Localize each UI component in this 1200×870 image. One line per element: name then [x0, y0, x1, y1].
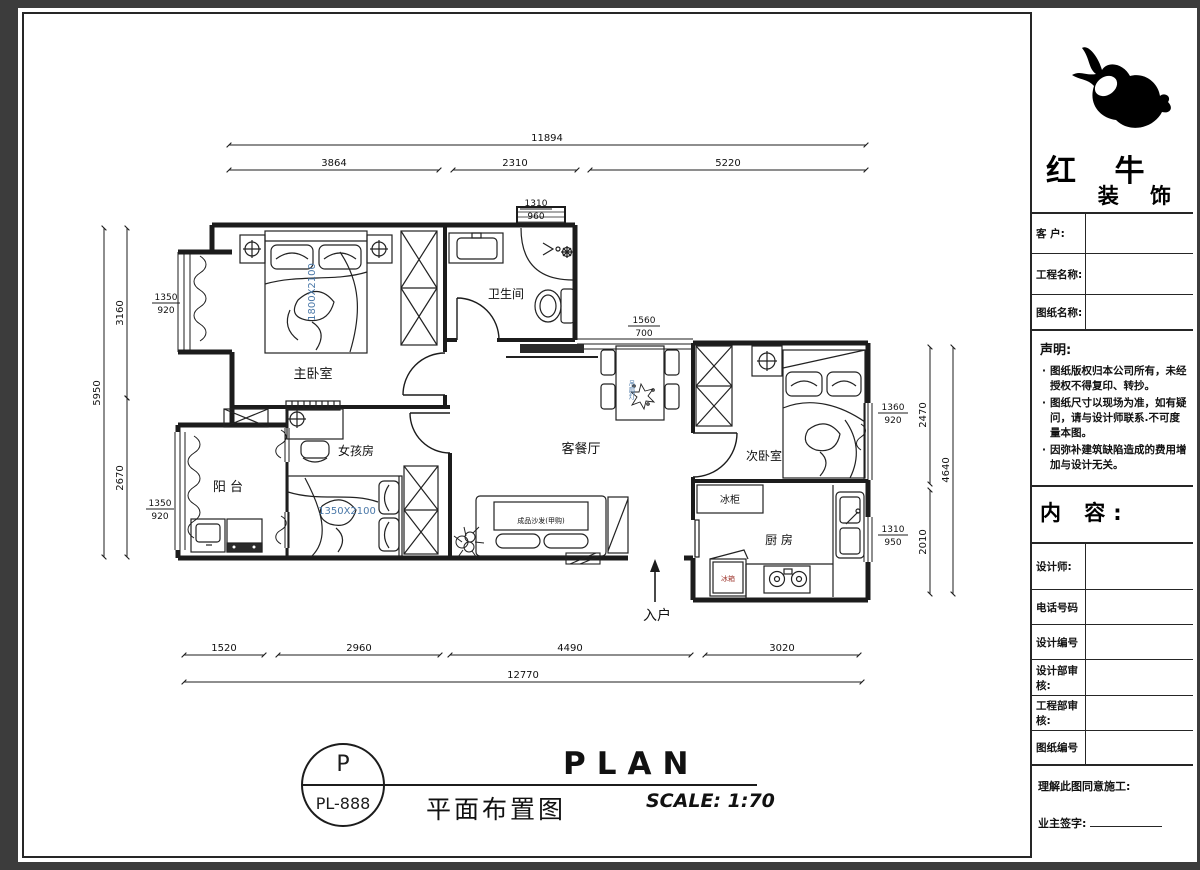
- design-review-label: 设计部审核:: [1032, 660, 1086, 695]
- owner-signature-text: 业主签字:: [1038, 817, 1086, 830]
- dim-right-1: 2470: [918, 402, 929, 427]
- freezer-label: 冰柜: [720, 493, 740, 506]
- dim-top-2: 2310: [502, 158, 527, 169]
- dim-top-total: 11894: [531, 133, 563, 144]
- win-top-a: 1310: [525, 199, 548, 209]
- fridge-label: 冰箱: [721, 574, 735, 583]
- entry-label: 入户: [643, 607, 671, 624]
- statement-title: 声明:: [1040, 339, 1187, 358]
- room-label-kitchen: 厨 房: [765, 532, 793, 547]
- design-no-field: [1086, 625, 1193, 659]
- drawing-name-label: 图纸名称:: [1032, 295, 1086, 329]
- master-bed-size-label: 1800X2100: [307, 263, 318, 321]
- win-left1-a: 1350: [155, 293, 178, 303]
- statement-item: ·图纸尺寸以现场为准，如有疑问，请与设计师联系.不可度量本图。: [1040, 396, 1187, 440]
- room-label-balcony: 阳 台: [213, 480, 243, 495]
- room-label-girl: 女孩房: [338, 443, 374, 458]
- phone-field: [1086, 590, 1193, 624]
- sheet-letter: P: [301, 752, 385, 777]
- statement-item: ·图纸版权归本公司所有，未经授权不得复印、转抄。: [1040, 364, 1187, 393]
- statement-item: ·因弥补建筑缺陷造成的费用增加与设计无关。: [1040, 443, 1187, 472]
- plant: [454, 527, 484, 558]
- dim-bot-3: 4490: [557, 643, 582, 654]
- bull-logo-shape: [1072, 47, 1171, 128]
- engineering-review-label: 工程部审核:: [1032, 696, 1086, 730]
- brand-logo-icon: [1060, 42, 1178, 142]
- dim-top-3: 5220: [715, 158, 740, 169]
- room-label-master: 主卧室: [293, 366, 332, 382]
- statement-item-text: 图纸版权归本公司所有，未经授权不得复印、转抄。: [1050, 364, 1187, 393]
- win-right1-a: 1360: [882, 403, 905, 413]
- win-right2-a: 1310: [882, 525, 905, 535]
- signature-section: 理解此图同意施工: 业主签字:: [1032, 766, 1193, 846]
- bullet: ·: [1042, 396, 1046, 440]
- floor-plan-drawing: 11894 3864 2310 5220 1520 2960 4490 3020…: [18, 8, 1197, 862]
- statement-item-text: 因弥补建筑缺陷造成的费用增加与设计无关。: [1050, 443, 1187, 472]
- win-left1-b: 920: [157, 306, 174, 316]
- phone-label: 电话号码: [1032, 590, 1086, 624]
- drawing-title-cn: 平面布置图: [426, 790, 566, 826]
- row-phone: 电话号码: [1032, 590, 1193, 625]
- project-name-label: 工程名称:: [1032, 254, 1086, 294]
- dim-left-total: 5950: [92, 380, 103, 405]
- dim-top-1: 3864: [321, 158, 346, 169]
- win-dining-a: 1560: [633, 316, 656, 326]
- bullet: ·: [1042, 443, 1046, 472]
- statement-item-text: 图纸尺寸以现场为准，如有疑问，请与设计师联系.不可度量本图。: [1050, 396, 1187, 440]
- row-design-no: 设计编号: [1032, 625, 1193, 660]
- bullet: ·: [1042, 364, 1046, 393]
- room-labels: 主卧室 卫生间 客餐厅 次卧室 厨 房 女孩房 阳 台: [213, 287, 793, 547]
- owner-signature-label: 业主签字:: [1038, 814, 1187, 831]
- designer-field: [1086, 544, 1193, 589]
- screenshot-stage: 11894 3864 2310 5220 1520 2960 4490 3020…: [0, 0, 1200, 870]
- construction-consent-label: 理解此图同意施工:: [1038, 778, 1187, 794]
- sofa: [476, 496, 628, 556]
- row-design-review: 设计部审核:: [1032, 660, 1193, 696]
- customer-label: 客 户:: [1032, 214, 1086, 253]
- tv-unit: [506, 344, 598, 357]
- win-left2-b: 920: [151, 512, 168, 522]
- signature-line: [1090, 814, 1162, 827]
- brand-logo-box: 红 牛 装 饰: [1032, 12, 1193, 214]
- drawing-name-field: [1086, 295, 1193, 329]
- win-left2-a: 1350: [149, 499, 172, 509]
- design-no-label: 设计编号: [1032, 625, 1086, 659]
- row-designer: 设计师:: [1032, 544, 1193, 590]
- statement-section: 声明: ·图纸版权归本公司所有，未经授权不得复印、转抄。 ·图纸尺寸以现场为准，…: [1032, 331, 1193, 487]
- sofa-label: 成品沙发(甲购): [517, 516, 565, 525]
- customer-field: [1086, 214, 1193, 253]
- row-customer: 客 户:: [1032, 214, 1193, 254]
- bathroom-fixtures: [449, 228, 574, 323]
- drawing-scale: SCALE: 1:70: [646, 790, 775, 812]
- drawing-sheet: 11894 3864 2310 5220 1520 2960 4490 3020…: [18, 8, 1197, 862]
- brand-name-line2: 装 饰: [1098, 180, 1183, 210]
- design-review-field: [1086, 660, 1193, 695]
- dim-bot-2: 2960: [346, 643, 371, 654]
- fan-lamp-label: 吊扇灯: [627, 380, 635, 401]
- dim-bot-total: 12770: [507, 670, 539, 681]
- row-engineering-review: 工程部审核:: [1032, 696, 1193, 731]
- win-top-b: 960: [527, 212, 544, 222]
- sheet-no-field: [1086, 731, 1193, 764]
- dim-left-1: 3160: [115, 300, 126, 325]
- dim-right-total: 4640: [941, 457, 952, 482]
- sheet-no-label: 图纸编号: [1032, 731, 1086, 764]
- room-label-second: 次卧室: [746, 448, 782, 463]
- row-sheet-no: 图纸编号: [1032, 731, 1193, 766]
- engineering-review-field: [1086, 696, 1193, 730]
- sheet-number: PL-888: [301, 794, 385, 813]
- entry-arrow: [650, 559, 660, 602]
- dining-set: [601, 346, 679, 420]
- room-label-living: 客餐厅: [561, 441, 600, 457]
- content-label: 内 容:: [1032, 487, 1193, 527]
- win-dining-b: 700: [635, 329, 652, 339]
- row-drawing-name: 图纸名称:: [1032, 295, 1193, 331]
- master-bedroom-furniture: [240, 231, 437, 410]
- dim-bot-4: 3020: [769, 643, 794, 654]
- title-block: 红 牛 装 饰 客 户: 工程名称: 图纸名称: 声明: ·图纸版权归本公司所有…: [1030, 12, 1193, 858]
- project-name-field: [1086, 254, 1193, 294]
- room-label-bath: 卫生间: [488, 287, 524, 301]
- girl-bed-size-label: 1350X2100: [318, 506, 376, 517]
- dim-right-2: 2010: [918, 529, 929, 554]
- curtain-symbols: [188, 256, 866, 544]
- win-right1-b: 920: [884, 416, 901, 426]
- drawing-title-en: PLAN: [563, 746, 699, 782]
- doors: [403, 298, 737, 557]
- dim-left-2: 2670: [115, 465, 126, 490]
- designer-label: 设计师:: [1032, 544, 1086, 589]
- dim-bot-1: 1520: [211, 643, 236, 654]
- girls-room-furniture: [287, 409, 438, 556]
- row-project-name: 工程名称:: [1032, 254, 1193, 295]
- content-section: 内 容:: [1032, 487, 1193, 544]
- win-right2-b: 950: [884, 538, 901, 548]
